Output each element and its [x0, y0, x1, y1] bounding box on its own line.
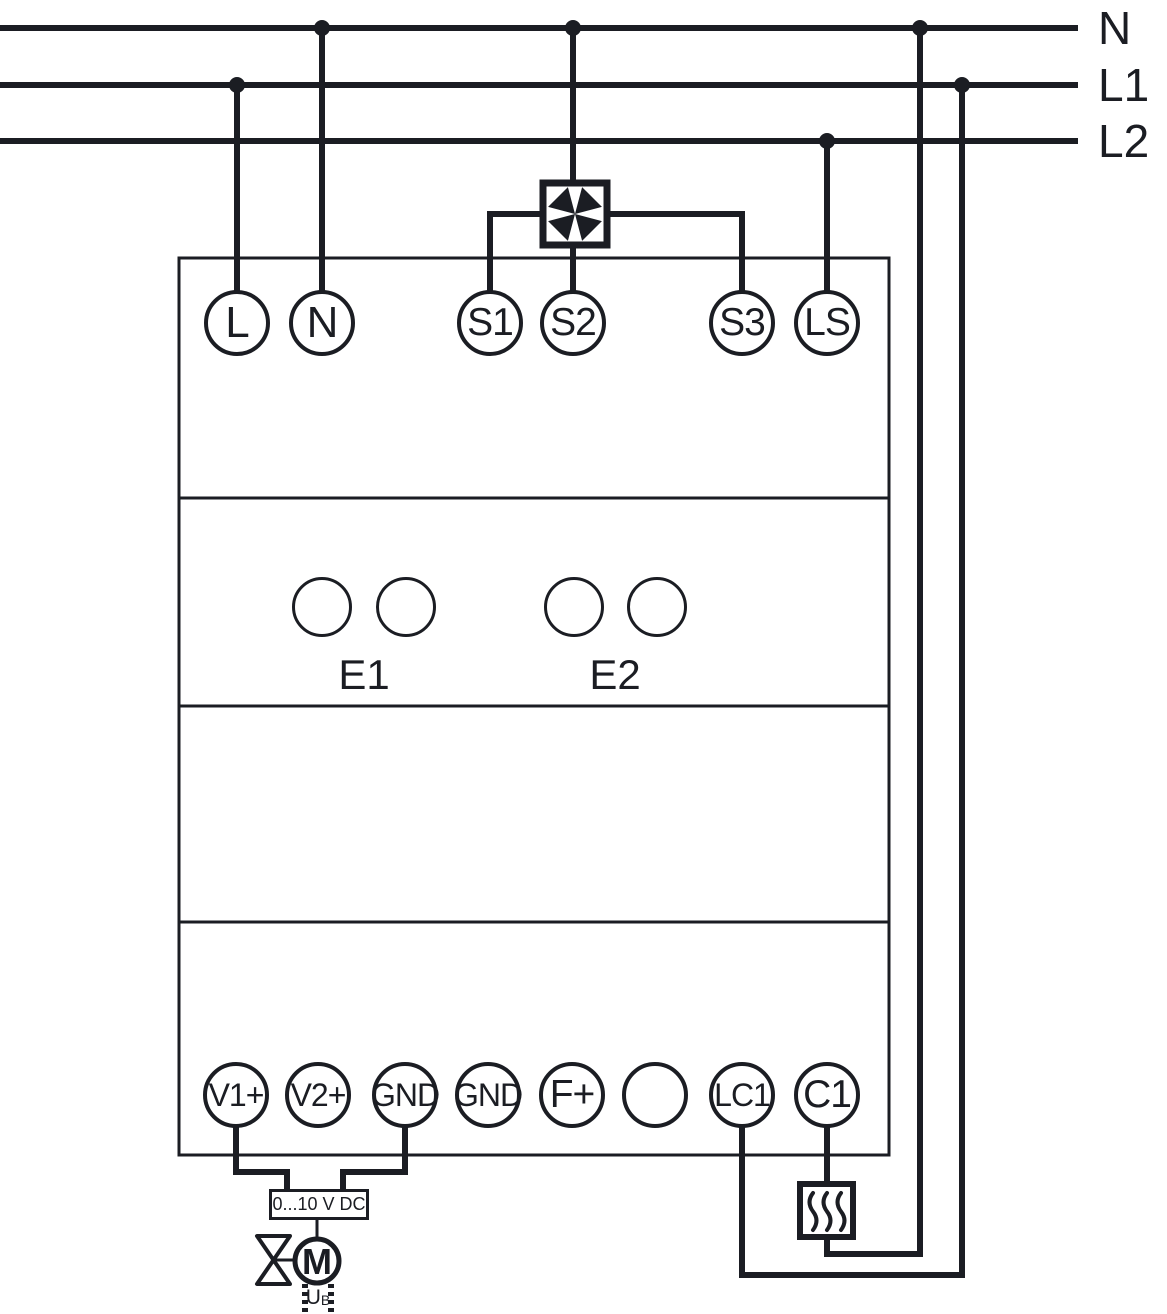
terminal-v1plus-label: V1+ [209, 1077, 264, 1114]
wire-v1-to-dcbox [236, 1126, 287, 1191]
input-circle-e1-a [292, 577, 352, 637]
terminal-n: N [289, 290, 355, 356]
terminal-c1: C1 [794, 1062, 860, 1128]
terminal-s2: S2 [540, 290, 606, 356]
terminal-v1plus: V1+ [203, 1062, 269, 1128]
terminal-s3: S3 [709, 290, 775, 356]
terminal-v2plus-label: V2+ [291, 1077, 346, 1114]
terminal-blank [622, 1062, 688, 1128]
terminal-s1: S1 [457, 290, 523, 356]
dc-signal-label: 0...10 V DC [272, 1194, 365, 1215]
terminal-n-label: N [307, 298, 338, 348]
terminal-s1-label: S1 [467, 301, 513, 345]
terminal-ls-label: LS [804, 301, 850, 345]
wire-gnd-to-dcbox [343, 1126, 405, 1191]
terminal-lc1: LC1 [709, 1062, 775, 1128]
power-label-n: N [1098, 5, 1167, 51]
fan-icon [543, 183, 607, 245]
terminal-v2plus: V2+ [285, 1062, 351, 1128]
power-label-l1: L1 [1098, 62, 1167, 108]
terminal-l-label: L [225, 298, 248, 348]
terminal-s3-label: S3 [719, 301, 765, 345]
dc-signal-box: 0...10 V DC [269, 1189, 369, 1220]
heater-icon [800, 1184, 853, 1237]
terminal-gnd-1: GND [372, 1062, 438, 1128]
terminal-gnd-2-label: GND [454, 1077, 522, 1114]
terminal-c1-label: C1 [803, 1073, 851, 1117]
terminal-gnd-1-label: GND [371, 1077, 439, 1114]
input-circle-e1-b [376, 577, 436, 637]
terminal-gnd-2: GND [455, 1062, 521, 1128]
terminal-lc1-label: LC1 [714, 1077, 770, 1114]
terminal-ls: LS [794, 290, 860, 356]
input-label-e2: E2 [575, 652, 655, 698]
input-circle-e2-a [544, 577, 604, 637]
terminal-fplus-label: F+ [550, 1073, 595, 1117]
input-circle-e2-b [627, 577, 687, 637]
supply-voltage-sub: B [321, 1292, 330, 1308]
power-label-l2: L2 [1098, 118, 1167, 164]
input-label-e1: E1 [324, 652, 404, 698]
supply-voltage-label: UB [297, 1286, 339, 1314]
terminal-l: L [204, 290, 270, 356]
motor-label: M [302, 1241, 332, 1282]
terminal-s2-label: S2 [550, 301, 596, 345]
terminal-fplus: F+ [539, 1062, 605, 1128]
wiring-diagram: M N L1 L2 L N S1 S2 S3 LS E1 E2 V1+ V2+ … [0, 0, 1167, 1314]
supply-voltage-main: U [306, 1286, 321, 1310]
wire-fan-to-s3 [601, 214, 742, 292]
